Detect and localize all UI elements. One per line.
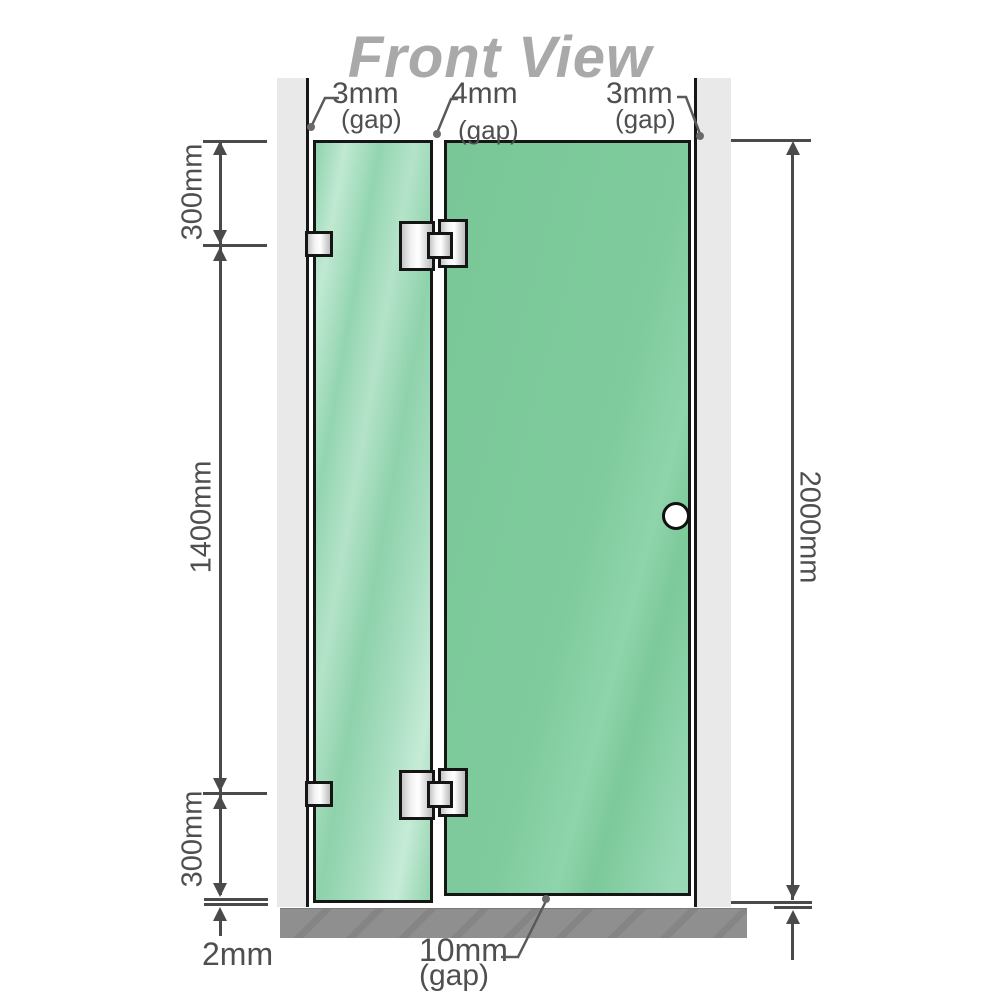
leader-dot [307,123,315,131]
leader-line-10mm-gap [501,901,546,957]
leader-dot [696,132,704,140]
leader-dot [433,130,441,138]
leader-line-3mm-right [677,97,700,134]
diagram-canvas: Front View [0,0,1000,1000]
leader-lines-overlay [0,0,1000,1000]
leader-dot [542,895,550,903]
leader-line-4mm-middle [437,99,458,133]
leader-line-3mm-left [311,98,339,127]
